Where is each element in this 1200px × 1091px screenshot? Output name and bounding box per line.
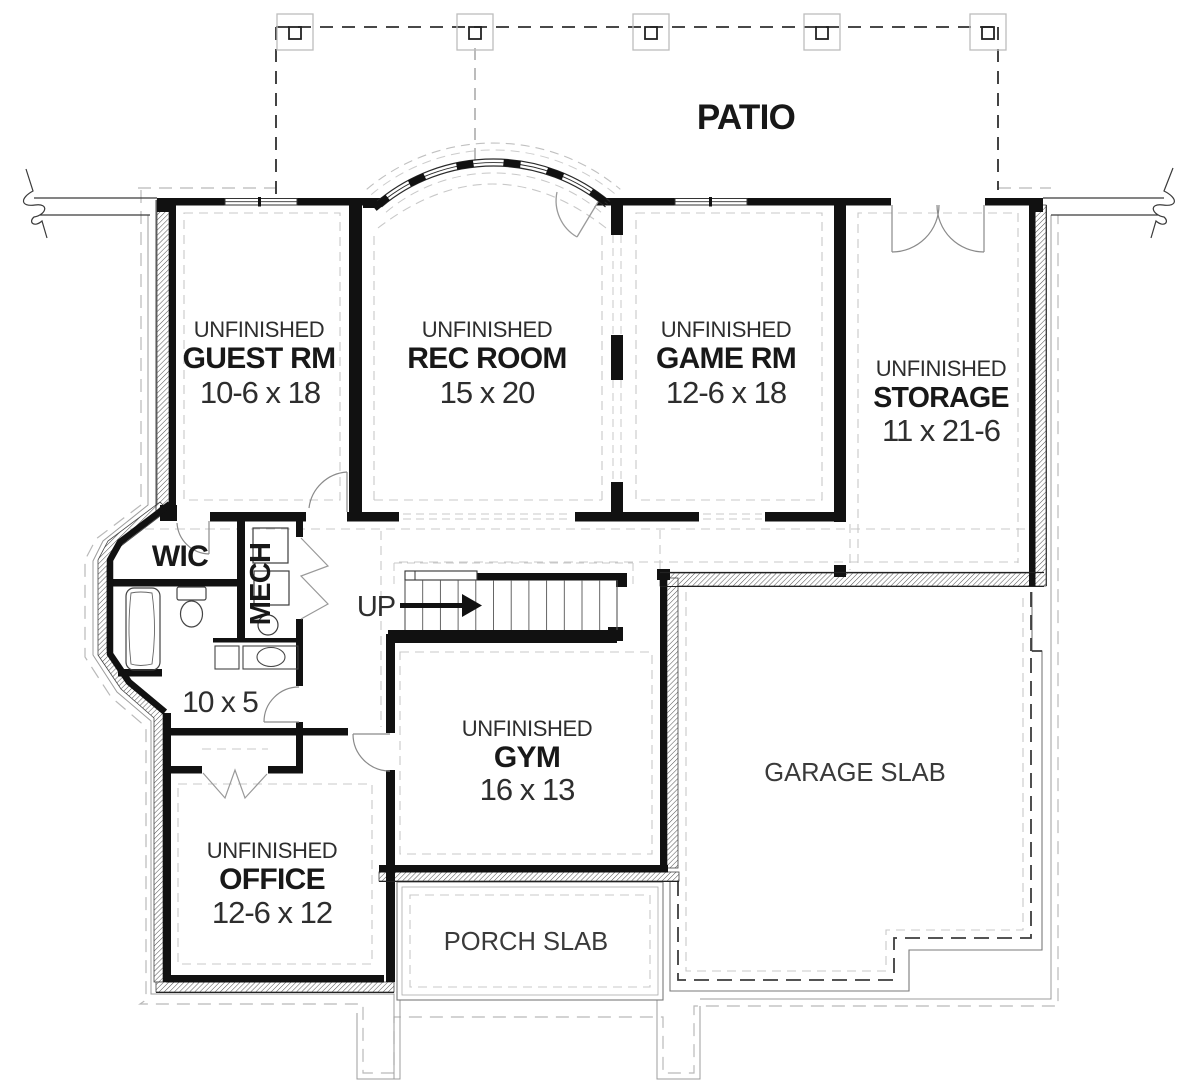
svg-text:GAME RM: GAME RM xyxy=(656,342,796,375)
svg-text:REC ROOM: REC ROOM xyxy=(407,342,566,375)
svg-text:MECH: MECH xyxy=(245,543,277,626)
svg-text:12-6 x 18: 12-6 x 18 xyxy=(666,375,786,410)
svg-text:11 x 21-6: 11 x 21-6 xyxy=(882,413,1000,448)
svg-text:UNFINISHED: UNFINISHED xyxy=(422,317,552,342)
svg-text:UNFINISHED: UNFINISHED xyxy=(207,838,337,863)
svg-text:UNFINISHED: UNFINISHED xyxy=(194,317,324,342)
svg-text:16 x 13: 16 x 13 xyxy=(480,772,575,807)
svg-text:PATIO: PATIO xyxy=(697,98,795,137)
svg-text:OFFICE: OFFICE xyxy=(219,863,325,896)
svg-text:GYM: GYM xyxy=(494,741,560,774)
svg-text:10-6 x 18: 10-6 x 18 xyxy=(200,375,320,410)
svg-text:WIC: WIC xyxy=(152,540,208,573)
svg-text:UNFINISHED: UNFINISHED xyxy=(462,716,592,741)
svg-text:UNFINISHED: UNFINISHED xyxy=(876,356,1006,381)
svg-text:GUEST RM: GUEST RM xyxy=(183,342,336,375)
svg-text:15 x 20: 15 x 20 xyxy=(440,375,535,410)
svg-text:STORAGE: STORAGE xyxy=(873,382,1009,414)
svg-text:UP: UP xyxy=(357,591,395,623)
svg-text:10 x 5: 10 x 5 xyxy=(182,686,258,719)
svg-text:GARAGE SLAB: GARAGE SLAB xyxy=(764,759,945,787)
svg-text:12-6 x 12: 12-6 x 12 xyxy=(212,895,332,930)
svg-text:UNFINISHED: UNFINISHED xyxy=(661,317,791,342)
svg-text:PORCH SLAB: PORCH SLAB xyxy=(444,928,608,956)
